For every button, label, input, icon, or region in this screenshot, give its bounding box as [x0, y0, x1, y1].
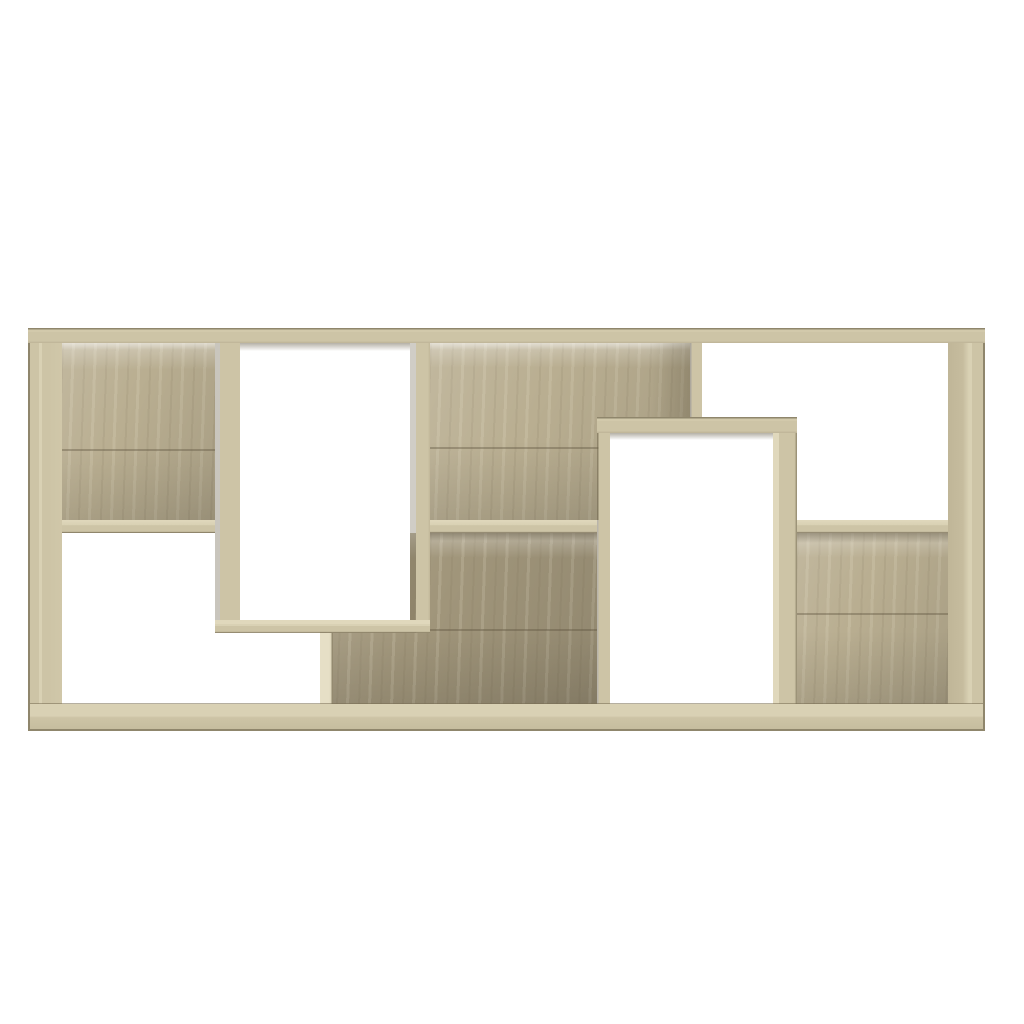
frame-box-left-side-right — [410, 343, 430, 633]
panel-light-edge — [62, 343, 215, 350]
right-side-panel — [948, 328, 985, 731]
frame-box-right-top-rail — [597, 417, 797, 433]
back-panel-bottom-right — [797, 533, 948, 710]
shelf-board-center — [430, 520, 597, 533]
divider-strip-upper — [690, 343, 702, 417]
frame-box-right-side-left — [597, 433, 610, 710]
frame-box-left-bottom-rail — [215, 620, 430, 633]
wood-plank-seam — [62, 449, 215, 451]
frame-box-right-top-shadow — [610, 433, 773, 440]
left-side-panel — [28, 328, 62, 731]
frame-box-left-side-left — [215, 343, 240, 633]
wood-plank-seam — [797, 613, 948, 615]
top-rail — [28, 328, 985, 343]
frame-box-left-top-shadow — [240, 343, 410, 351]
base-board — [28, 703, 985, 731]
product-photo-canvas — [0, 0, 1024, 1024]
frame-box-left-opening — [240, 350, 410, 620]
bookshelf — [28, 328, 985, 731]
divider-strip-lower — [320, 633, 333, 710]
shelf-center-under-shadow — [430, 533, 597, 541]
shelf-right-under-shadow — [797, 533, 948, 543]
frame-box-right-opening — [610, 433, 773, 710]
back-panel-top-left — [62, 343, 215, 533]
frame-box-right-side-right — [773, 433, 797, 710]
